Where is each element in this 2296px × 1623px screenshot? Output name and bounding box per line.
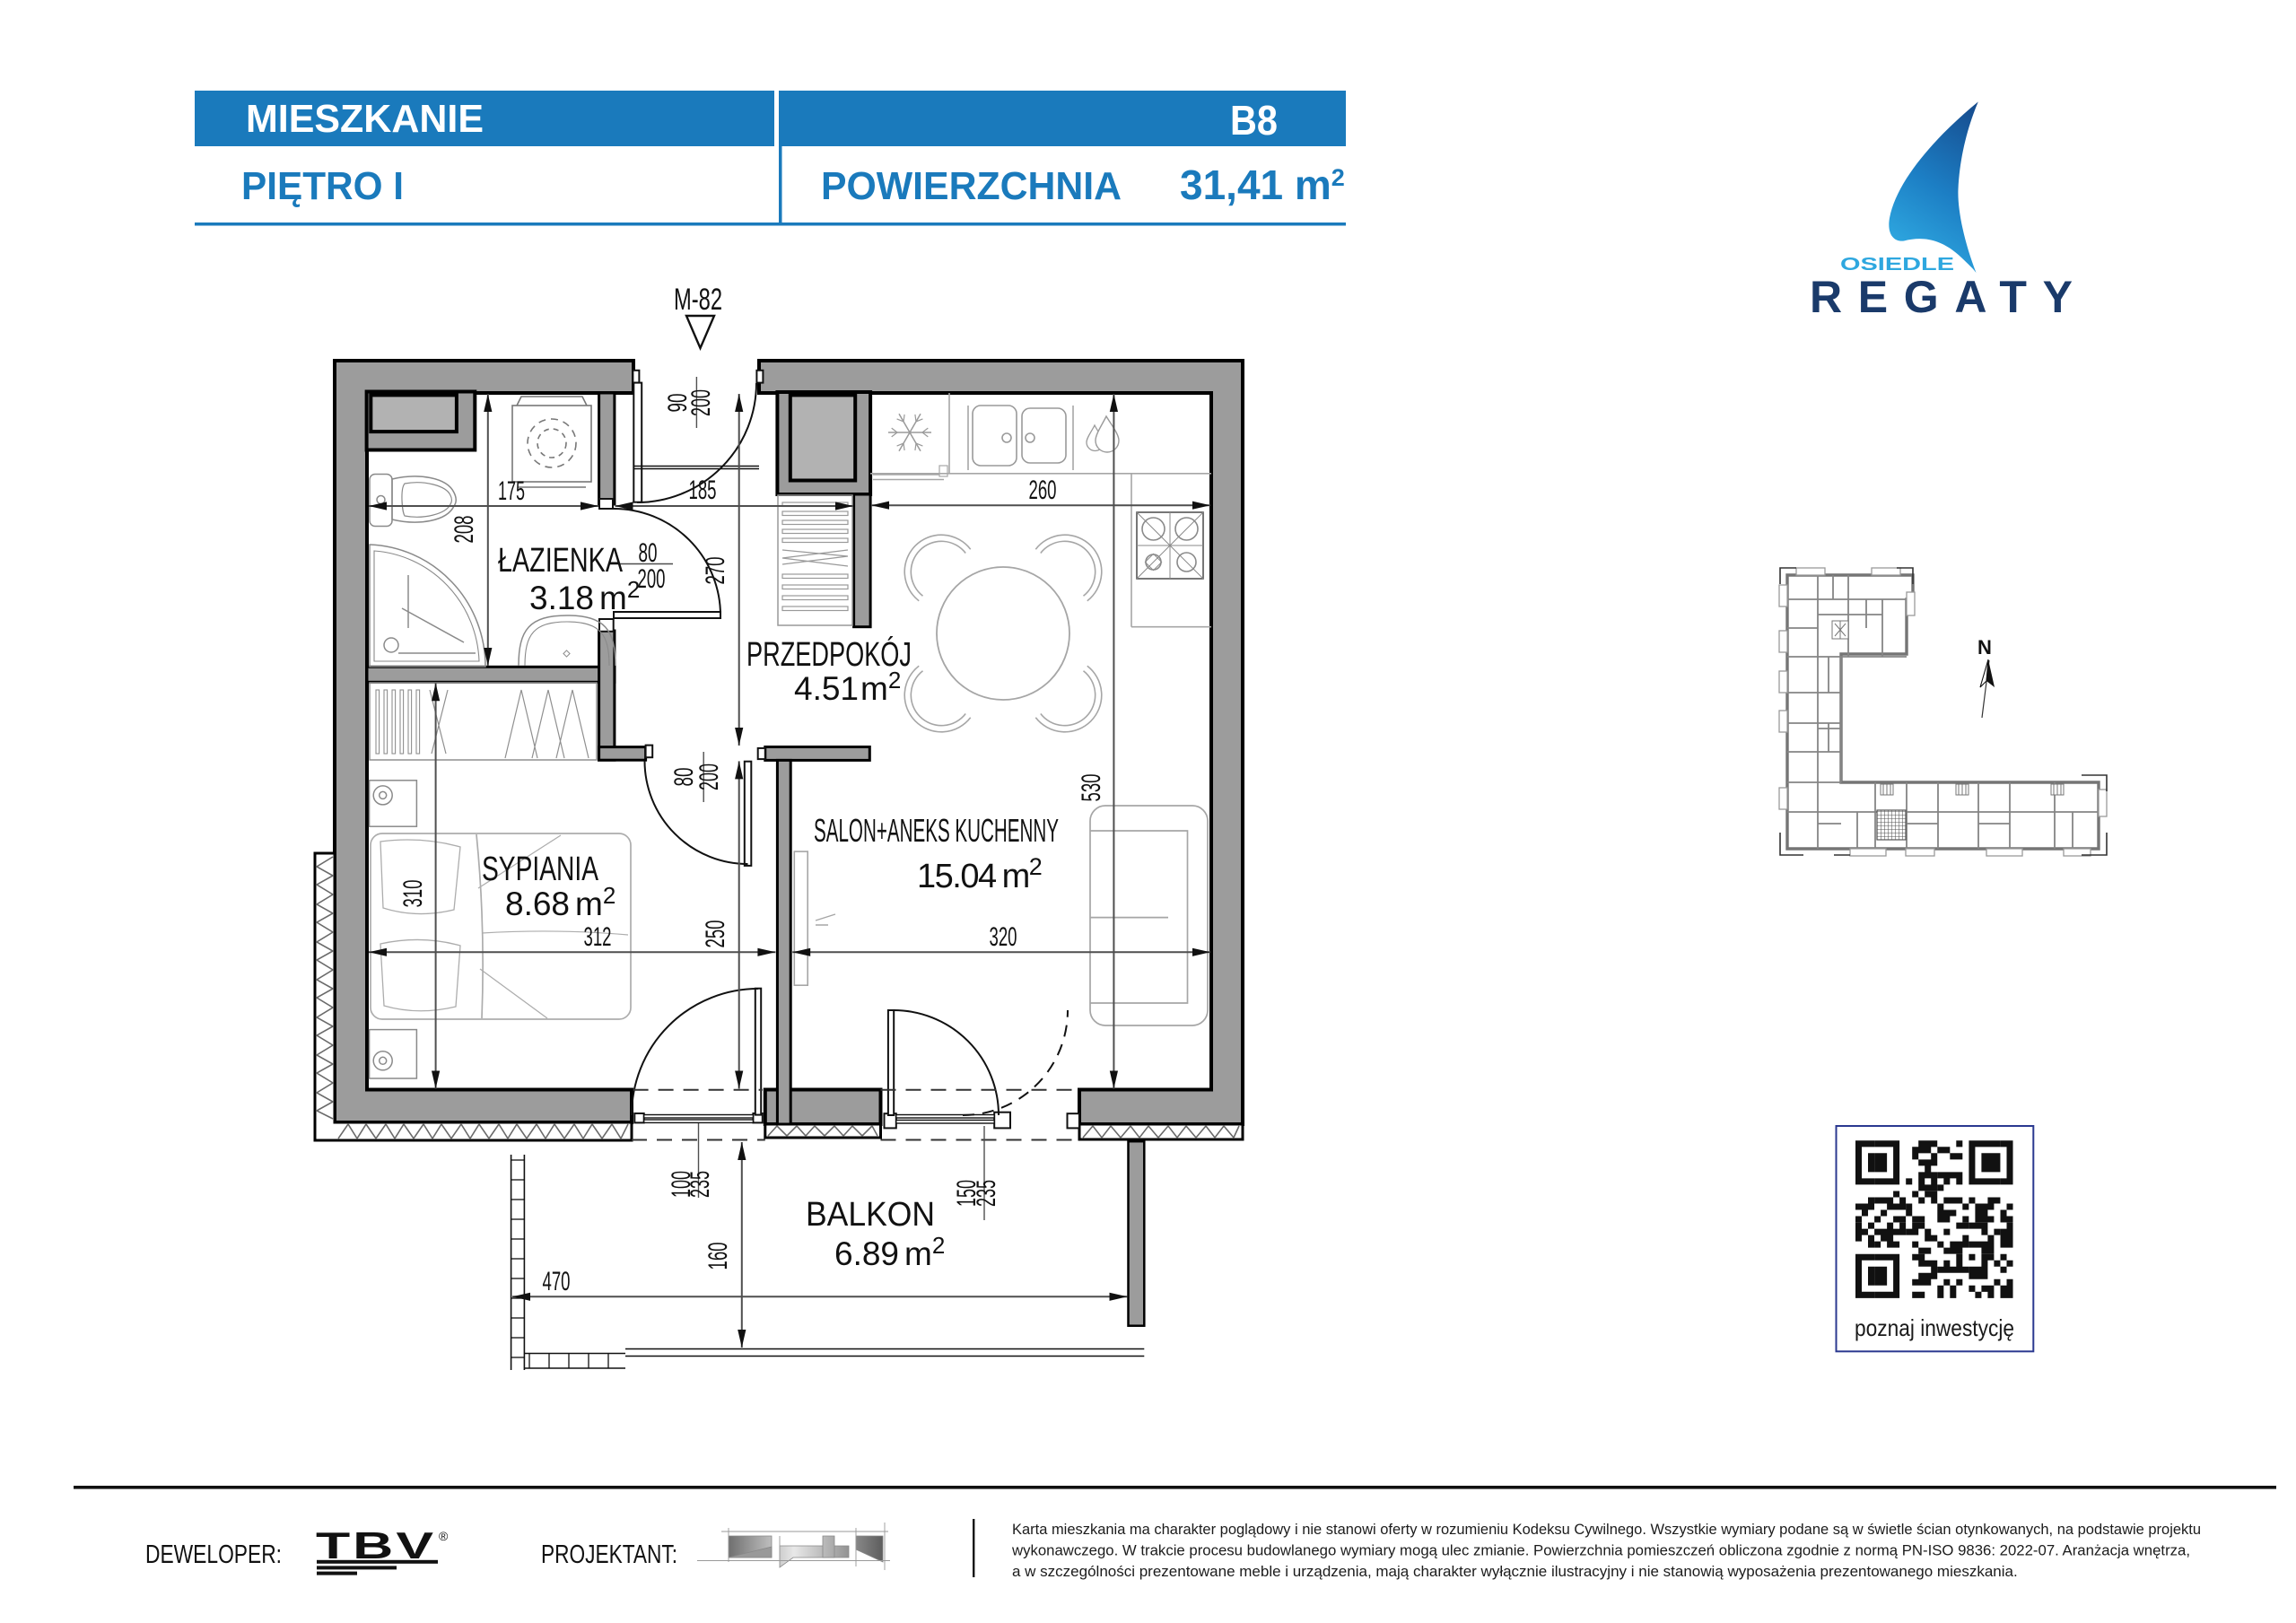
svg-text:6.89m2: 6.89m2 xyxy=(834,1232,945,1272)
svg-text:POWIERZCHNIA: POWIERZCHNIA xyxy=(821,164,1122,208)
svg-text:PIĘTRO I: PIĘTRO I xyxy=(241,164,404,208)
svg-text:BALKON: BALKON xyxy=(806,1196,935,1234)
svg-text:SALON+ANEKS KUCHENNY: SALON+ANEKS KUCHENNY xyxy=(814,812,1059,849)
svg-text:PRZEDPOKÓJ: PRZEDPOKÓJ xyxy=(746,635,912,674)
svg-text:Karta mieszkania ma charakter: Karta mieszkania ma charakter poglądowy … xyxy=(1012,1521,2201,1538)
svg-text:260: 260 xyxy=(1029,476,1057,505)
svg-text:235: 235 xyxy=(685,1171,715,1198)
svg-text:270: 270 xyxy=(701,557,730,585)
svg-text:SYPIANIA: SYPIANIA xyxy=(482,851,598,888)
svg-text:31,41 m2: 31,41 m2 xyxy=(1180,161,1345,208)
svg-text:185: 185 xyxy=(689,476,717,505)
svg-text:160: 160 xyxy=(703,1243,733,1270)
svg-text:ŁAZIENKA: ŁAZIENKA xyxy=(498,542,623,580)
svg-text:312: 312 xyxy=(584,922,612,952)
svg-text:wykonawczego. W trakcie proces: wykonawczego. W trakcie procesu budowlan… xyxy=(1011,1542,2190,1559)
svg-text:250: 250 xyxy=(701,921,730,948)
svg-text:470: 470 xyxy=(543,1267,571,1296)
svg-text:3.18m2: 3.18m2 xyxy=(529,576,640,616)
svg-text:530: 530 xyxy=(1077,774,1106,802)
svg-text:320: 320 xyxy=(990,922,1017,952)
svg-text:DEWELOPER:: DEWELOPER: xyxy=(145,1540,282,1569)
svg-text:N: N xyxy=(1977,636,1992,659)
svg-text:a w szczególności prezentowane: a w szczególności prezentowane meble i u… xyxy=(1012,1563,2018,1580)
svg-text:200: 200 xyxy=(686,389,716,416)
svg-text:4.51m2: 4.51m2 xyxy=(794,667,901,707)
svg-text:8.68m2: 8.68m2 xyxy=(505,882,615,922)
svg-text:208: 208 xyxy=(450,516,479,544)
svg-text:poznaj inwestycję: poznaj inwestycję xyxy=(1855,1314,2014,1341)
svg-text:®: ® xyxy=(439,1529,449,1543)
svg-text:235: 235 xyxy=(972,1180,1001,1207)
svg-text:175: 175 xyxy=(498,476,525,506)
svg-text:PROJEKTANT:: PROJEKTANT: xyxy=(541,1540,677,1569)
svg-text:B8: B8 xyxy=(1230,97,1278,144)
svg-text:M-82: M-82 xyxy=(674,283,722,317)
svg-text:200: 200 xyxy=(694,764,724,790)
svg-text:15.04m2: 15.04m2 xyxy=(917,853,1042,895)
svg-text:310: 310 xyxy=(398,880,428,908)
svg-text:MIESZKANIE: MIESZKANIE xyxy=(246,97,484,141)
svg-text:200: 200 xyxy=(638,564,666,594)
